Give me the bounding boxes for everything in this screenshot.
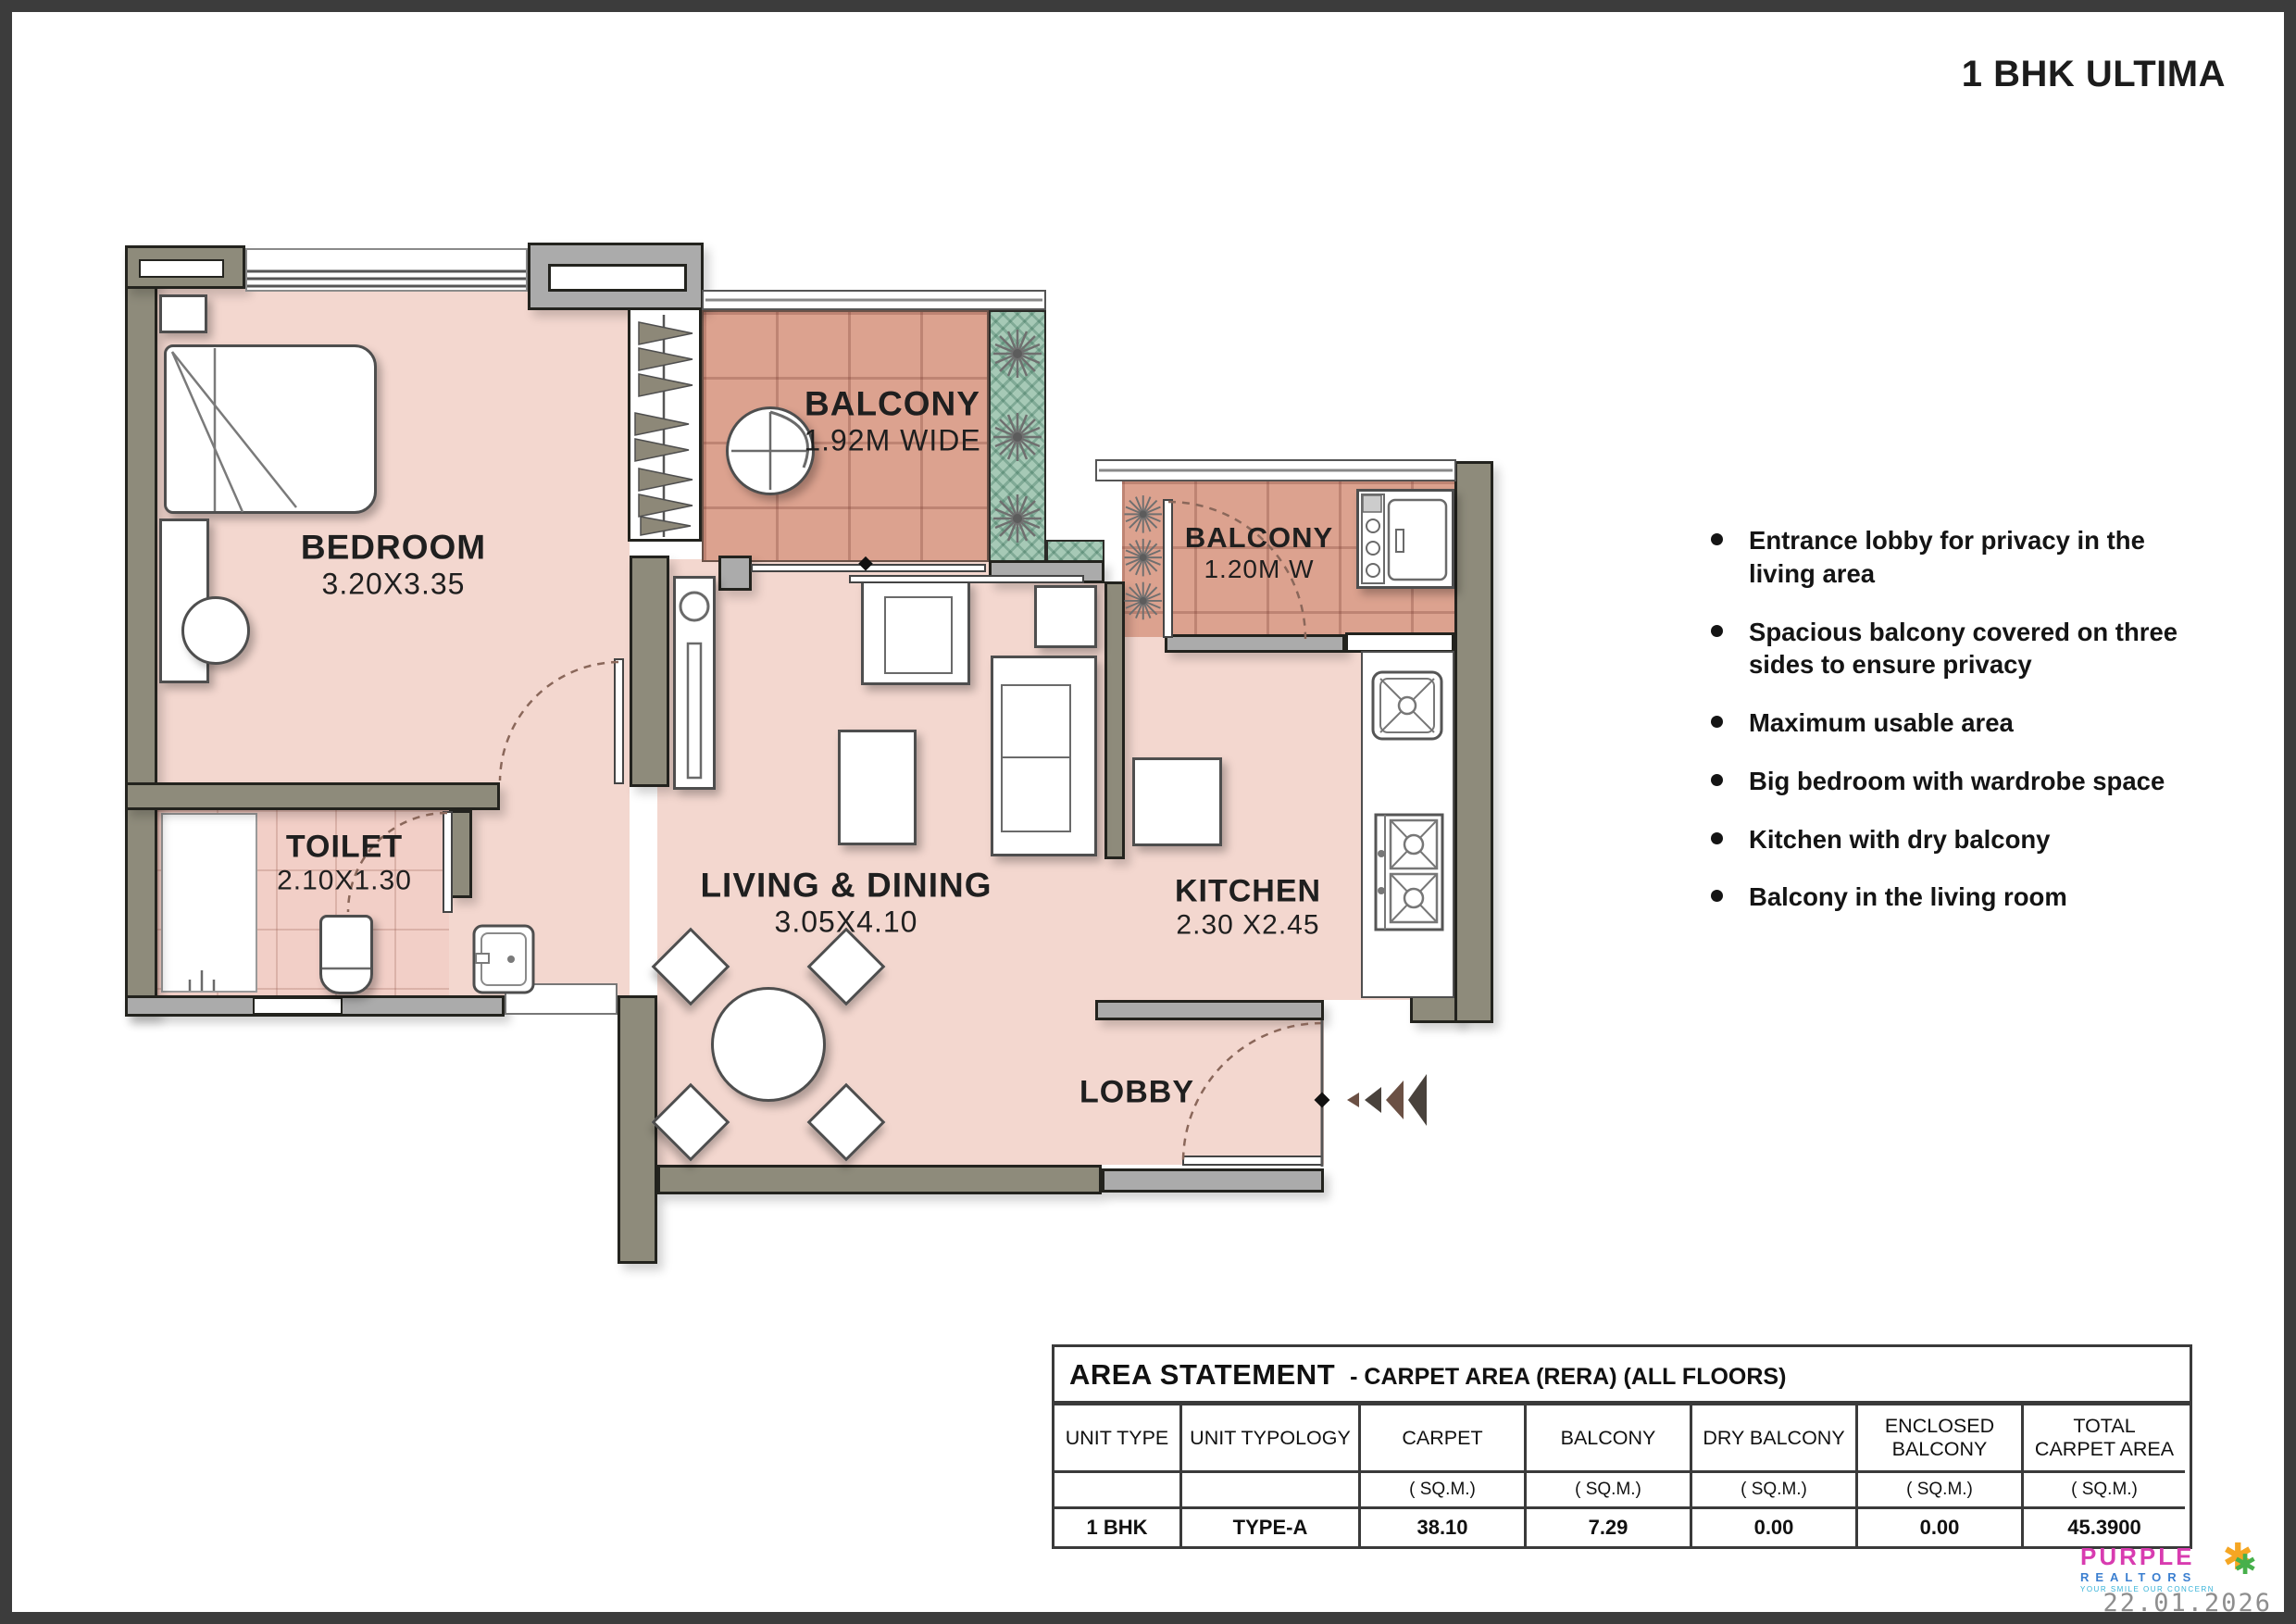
table-units-row: ( SQ.M.) ( SQ.M.) ( SQ.M.) ( SQ.M.) ( SQ… (1054, 1473, 2190, 1509)
side-table (1034, 585, 1097, 648)
passage-threshold (505, 983, 618, 1015)
wall-kitchen-right (1454, 461, 1493, 1023)
area-statement-table: AREA STATEMENT - CARPET AREA (RERA) (ALL… (1052, 1344, 2192, 1549)
data-cell: 38.10 (1361, 1509, 1527, 1546)
sofa-cushion (1001, 684, 1071, 760)
washing-machine (1356, 489, 1454, 589)
label-living: LIVING & DINING 3.05X4.10 (700, 867, 992, 940)
wardrobe (628, 307, 702, 542)
nightstand (159, 294, 207, 333)
feature-text: Maximum usable area (1749, 706, 2014, 740)
wall-bedroom-bottom (125, 782, 500, 810)
wall-toilet-right (449, 810, 472, 898)
window-top-left (139, 259, 224, 278)
feature-item: Spacious balcony covered on three sides … (1711, 616, 2183, 682)
table-data-row: 1 BHK TYPE-A 38.10 7.29 0.00 0.00 45.390… (1054, 1509, 2190, 1546)
bullet-icon (1711, 774, 1723, 786)
unit-cell: ( SQ.M.) (1692, 1473, 1858, 1509)
unit-cell (1054, 1473, 1182, 1509)
shower-area (161, 813, 257, 993)
column-header: CARPET (1361, 1405, 1527, 1473)
feature-text: Spacious balcony covered on three sides … (1749, 616, 2183, 682)
floor-plan-sheet: 1 BHK ULTIMA (0, 0, 2296, 1624)
data-cell: 1 BHK (1054, 1509, 1182, 1546)
kitchen-counter (1361, 651, 1454, 998)
wall-left (125, 245, 157, 1017)
window-bedroom (245, 248, 528, 292)
bullet-icon (1711, 832, 1723, 844)
table-title: AREA STATEMENT (1069, 1358, 1335, 1392)
page-title: 1 BHK ULTIMA (1962, 54, 2226, 95)
column-header: ENCLOSED BALCONY (1858, 1405, 2024, 1473)
wall-living-left (618, 995, 657, 1264)
sofa (991, 656, 1097, 856)
company-logo: PURPLE REALTORS YOUR SMILE OUR CONCERN (2080, 1544, 2215, 1593)
wall-entry-block (1410, 995, 1461, 1023)
balcony-rail (702, 290, 1046, 310)
window-top-mid (548, 264, 687, 292)
window-kitchen-sill (1345, 632, 1454, 653)
wall-lobby-bottom (1102, 1168, 1324, 1193)
label-toilet: TOILET 2.10X1.30 (277, 830, 412, 897)
unit-cell: ( SQ.M.) (1361, 1473, 1527, 1509)
column-header: DRY BALCONY (1692, 1405, 1858, 1473)
bedroom-stool (181, 596, 250, 665)
label-kitchen: KITCHEN 2.30 X2.45 (1175, 874, 1321, 942)
feature-text: Balcony in the living room (1749, 881, 2067, 914)
dry-balcony-rail (1095, 459, 1456, 481)
tv-unit (673, 576, 716, 790)
wall-kitchen-bottom (1095, 1000, 1324, 1020)
wall-slider-stub-right (989, 560, 1104, 583)
coffee-table (838, 730, 917, 845)
feature-item: Maximum usable area (1711, 706, 2183, 740)
logo-name: PURPLE (2080, 1544, 2215, 1568)
feature-list: Entrance lobby for privacy in the living… (1711, 524, 2183, 939)
data-cell: 7.29 (1527, 1509, 1692, 1546)
bullet-icon (1711, 890, 1723, 902)
armchair (861, 581, 970, 685)
data-cell: 0.00 (1692, 1509, 1858, 1546)
window-toilet (253, 997, 343, 1015)
table-header-row: UNIT TYPE UNIT TYPOLOGY CARPET BALCONY D… (1054, 1405, 2190, 1473)
data-cell: TYPE-A (1182, 1509, 1361, 1546)
planter-strip (989, 310, 1046, 565)
wall-slider-stub-left (718, 556, 752, 591)
label-balcony-main: BALCONY 1.92M WIDE (804, 385, 980, 458)
feature-text: Entrance lobby for privacy in the living… (1749, 524, 2183, 591)
column-header: UNIT TYPE (1054, 1405, 1182, 1473)
feature-text: Big bedroom with wardrobe space (1749, 765, 2165, 798)
feature-item: Kitchen with dry balcony (1711, 823, 2183, 856)
label-bedroom: BEDROOM 3.20X3.35 (301, 529, 486, 602)
logo-star-icon: ✱✱ (2222, 1539, 2253, 1576)
feature-item: Balcony in the living room (1711, 881, 2183, 914)
feature-text: Kitchen with dry balcony (1749, 823, 2050, 856)
data-cell: 45.3900 (2024, 1509, 2185, 1546)
column-header: TOTAL CARPET AREA (2024, 1405, 2185, 1473)
logo-name-secondary: REALTORS (2080, 1571, 2215, 1583)
bullet-icon (1711, 716, 1723, 728)
date-stamp: 22.01.2026 (2103, 1589, 2272, 1618)
table-subtitle: - CARPET AREA (RERA) (ALL FLOORS) (1350, 1364, 1786, 1391)
column-header: UNIT TYPOLOGY (1182, 1405, 1361, 1473)
wall-bedroom-right (630, 556, 669, 787)
feature-item: Entrance lobby for privacy in the living… (1711, 524, 2183, 591)
table-title-row: AREA STATEMENT - CARPET AREA (RERA) (ALL… (1054, 1347, 2190, 1405)
entrance-marker-icon (1347, 1074, 1427, 1126)
bed (164, 344, 377, 514)
fridge (1132, 757, 1222, 846)
unit-cell: ( SQ.M.) (1527, 1473, 1692, 1509)
toilet-wc (319, 915, 373, 994)
bullet-icon (1711, 625, 1723, 637)
data-cell: 0.00 (1858, 1509, 2024, 1546)
wall-living-bottom (657, 1165, 1102, 1194)
label-lobby: LOBBY (1079, 1075, 1194, 1111)
sofa-cushion (1001, 756, 1071, 832)
column-header: BALCONY (1527, 1405, 1692, 1473)
unit-cell: ( SQ.M.) (2024, 1473, 2185, 1509)
armchair-cushion (884, 596, 953, 674)
wall-kitchen-left (1104, 581, 1125, 859)
unit-cell: ( SQ.M.) (1858, 1473, 2024, 1509)
hanging-chair (726, 406, 815, 495)
bullet-icon (1711, 533, 1723, 545)
feature-item: Big bedroom with wardrobe space (1711, 765, 2183, 798)
dining-table (711, 987, 826, 1102)
label-balcony-dry: BALCONY 1.20M W (1185, 521, 1333, 584)
wall-dry-balcony-bottom (1165, 634, 1345, 653)
unit-cell (1182, 1473, 1361, 1509)
